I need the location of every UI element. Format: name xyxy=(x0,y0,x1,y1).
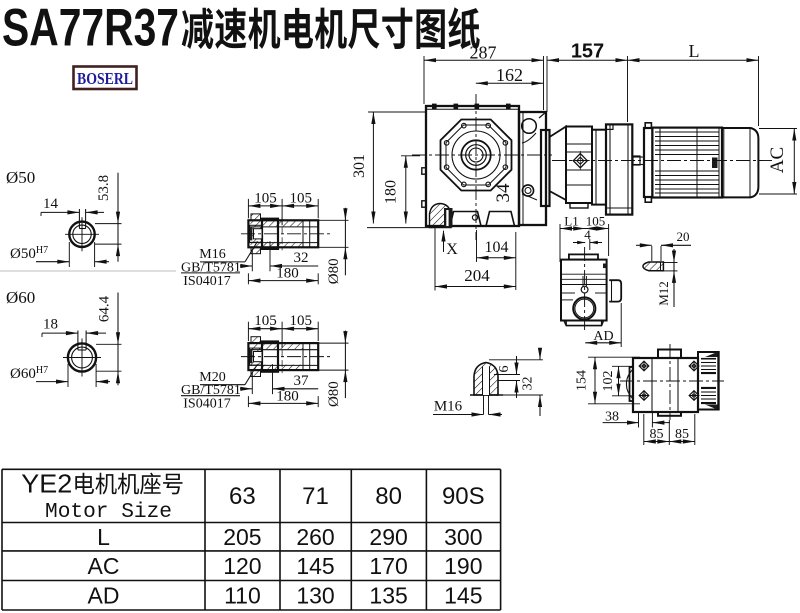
svg-text:204: 204 xyxy=(464,266,490,285)
svg-text:BOSERL: BOSERL xyxy=(77,69,133,88)
svg-text:L: L xyxy=(689,41,700,61)
svg-text:145: 145 xyxy=(444,583,482,609)
svg-text:63: 63 xyxy=(229,483,256,510)
svg-text:SA77R37: SA77R37 xyxy=(2,0,179,58)
svg-text:205: 205 xyxy=(223,524,261,550)
svg-text:Ø50: Ø50 xyxy=(6,168,35,187)
svg-text:300: 300 xyxy=(444,524,482,550)
svg-text:L: L xyxy=(97,524,110,550)
svg-text:4: 4 xyxy=(584,227,591,242)
svg-text:Motor Size: Motor Size xyxy=(45,501,172,524)
svg-text:162: 162 xyxy=(496,65,523,85)
svg-text:14: 14 xyxy=(43,196,59,212)
svg-text:M16: M16 xyxy=(434,399,463,415)
svg-text:53.8: 53.8 xyxy=(96,175,112,201)
svg-text:X: X xyxy=(446,241,458,258)
svg-text:Ø80: Ø80 xyxy=(326,381,342,407)
svg-text:L1: L1 xyxy=(564,214,578,229)
svg-text:105: 105 xyxy=(289,190,312,206)
svg-text:85: 85 xyxy=(650,427,664,442)
svg-text:260: 260 xyxy=(296,524,334,550)
svg-text:105: 105 xyxy=(254,190,277,206)
svg-text:AC: AC xyxy=(767,147,788,173)
svg-text:154: 154 xyxy=(575,370,590,391)
svg-text:157: 157 xyxy=(571,40,604,62)
svg-text:37: 37 xyxy=(294,373,310,389)
svg-text:Ø80: Ø80 xyxy=(326,258,342,284)
svg-text:IS04017: IS04017 xyxy=(183,274,230,289)
svg-text:104: 104 xyxy=(485,239,509,256)
svg-text:120: 120 xyxy=(223,553,261,579)
svg-text:180: 180 xyxy=(276,266,299,282)
svg-text:102: 102 xyxy=(601,371,616,392)
svg-text:32: 32 xyxy=(294,250,309,266)
svg-text:130: 130 xyxy=(296,583,334,609)
svg-text:135: 135 xyxy=(369,583,407,609)
svg-text:YE2: YE2 xyxy=(21,469,72,499)
svg-text:71: 71 xyxy=(302,483,329,510)
svg-text:IS04017: IS04017 xyxy=(183,397,230,412)
svg-text:AD: AD xyxy=(88,583,120,609)
svg-text:145: 145 xyxy=(296,553,334,579)
svg-text:110: 110 xyxy=(224,583,261,609)
svg-text:64.4: 64.4 xyxy=(97,295,113,322)
svg-text:M12: M12 xyxy=(656,281,671,306)
svg-text:20: 20 xyxy=(677,229,690,244)
svg-text:32: 32 xyxy=(521,377,536,391)
svg-text:85: 85 xyxy=(675,427,689,442)
svg-text:301: 301 xyxy=(351,154,368,178)
svg-text:105: 105 xyxy=(289,313,312,329)
svg-text:90S: 90S xyxy=(442,483,485,510)
svg-text:18: 18 xyxy=(43,317,58,333)
svg-text:190: 190 xyxy=(444,553,482,579)
svg-text:180: 180 xyxy=(276,388,299,404)
svg-text:180: 180 xyxy=(383,180,400,204)
svg-text:AD: AD xyxy=(593,329,613,344)
svg-text:6: 6 xyxy=(497,366,512,373)
svg-text:290: 290 xyxy=(369,524,407,550)
svg-text:38: 38 xyxy=(605,410,619,425)
svg-text:Ø60: Ø60 xyxy=(6,288,35,307)
svg-text:34: 34 xyxy=(493,183,514,203)
svg-text:AC: AC xyxy=(88,553,120,579)
svg-text:170: 170 xyxy=(369,553,407,579)
svg-text:80: 80 xyxy=(375,483,402,510)
svg-text:287: 287 xyxy=(470,42,497,62)
svg-text:105: 105 xyxy=(254,313,277,329)
